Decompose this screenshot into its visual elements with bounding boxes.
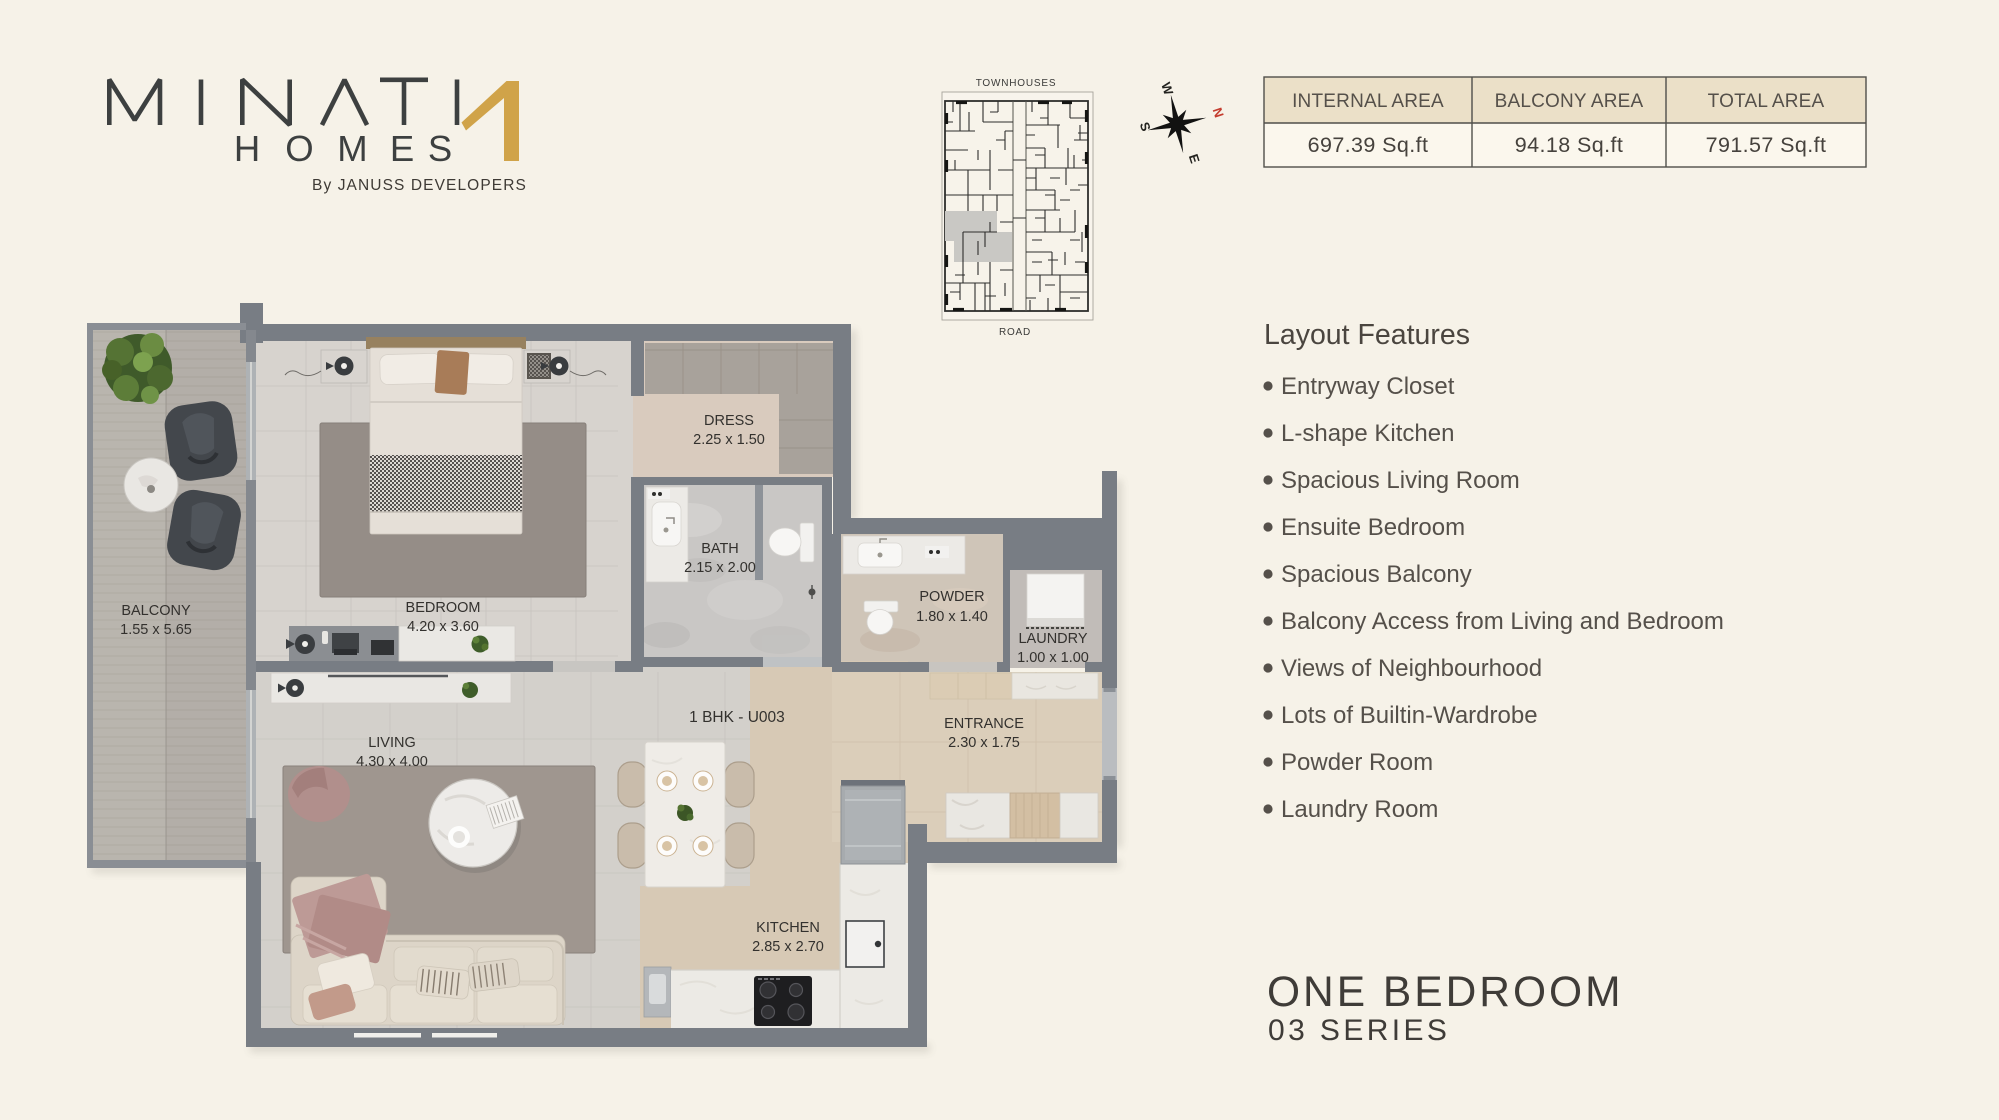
svg-text:LAUNDRY: LAUNDRY (1018, 631, 1087, 647)
svg-text:E: E (390, 128, 414, 169)
svg-text:Powder Room: Powder Room (1281, 749, 1433, 776)
svg-text:1.80 x 1.40: 1.80 x 1.40 (916, 609, 988, 625)
svg-text:2.85 x 2.70: 2.85 x 2.70 (752, 939, 824, 955)
svg-text:4.20 x 3.60: 4.20 x 3.60 (407, 619, 479, 635)
svg-text:LIVING: LIVING (368, 735, 416, 751)
svg-text:BEDROOM: BEDROOM (406, 600, 481, 616)
svg-text:Layout Features: Layout Features (1264, 319, 1470, 351)
svg-text:INTERNAL AREA: INTERNAL AREA (1292, 91, 1444, 112)
svg-text:BATH: BATH (701, 541, 739, 557)
svg-text:L-shape Kitchen: L-shape Kitchen (1281, 420, 1454, 447)
svg-text:ENTRANCE: ENTRANCE (944, 716, 1024, 732)
svg-text:697.39 Sq.ft: 697.39 Sq.ft (1308, 133, 1429, 157)
svg-text:By JANUSS DEVELOPERS: By JANUSS DEVELOPERS (312, 177, 527, 194)
svg-text:Laundry Room: Laundry Room (1281, 796, 1438, 823)
svg-text:2.15 x 2.00: 2.15 x 2.00 (684, 560, 756, 576)
svg-text:4.30 x 4.00: 4.30 x 4.00 (356, 754, 428, 770)
svg-text:S: S (428, 128, 452, 169)
svg-text:791.57 Sq.ft: 791.57 Sq.ft (1706, 133, 1827, 157)
svg-text:BALCONY: BALCONY (121, 603, 191, 619)
svg-text:Entryway Closet: Entryway Closet (1281, 373, 1455, 400)
svg-text:ONE BEDROOM: ONE BEDROOM (1267, 969, 1624, 1016)
svg-text:1 BHK - U003: 1 BHK - U003 (689, 709, 785, 726)
svg-text:Balcony Access from Living and: Balcony Access from Living and Bedroom (1281, 608, 1724, 635)
svg-text:POWDER: POWDER (919, 589, 984, 605)
svg-text:Spacious Living Room: Spacious Living Room (1281, 467, 1520, 494)
svg-text:1.55 x 5.65: 1.55 x 5.65 (120, 622, 192, 638)
svg-text:M: M (337, 128, 367, 169)
svg-text:Lots of Builtin-Wardrobe: Lots of Builtin-Wardrobe (1281, 702, 1538, 729)
svg-text:TOTAL AREA: TOTAL AREA (1708, 91, 1825, 112)
svg-text:O: O (285, 128, 313, 169)
svg-text:03 SERIES: 03 SERIES (1268, 1014, 1450, 1047)
svg-text:2.30 x 1.75: 2.30 x 1.75 (948, 735, 1020, 751)
svg-text:KITCHEN: KITCHEN (756, 920, 820, 936)
svg-text:DRESS: DRESS (704, 413, 754, 429)
svg-text:94.18 Sq.ft: 94.18 Sq.ft (1515, 133, 1623, 157)
svg-text:ROAD: ROAD (999, 327, 1031, 338)
svg-text:Ensuite Bedroom: Ensuite Bedroom (1281, 514, 1465, 541)
svg-text:1.00 x 1.00: 1.00 x 1.00 (1017, 650, 1089, 666)
svg-text:Views of Neighbourhood: Views of Neighbourhood (1281, 655, 1542, 682)
svg-text:H: H (234, 128, 260, 169)
svg-text:Spacious Balcony: Spacious Balcony (1281, 561, 1472, 588)
svg-text:BALCONY AREA: BALCONY AREA (1495, 91, 1644, 112)
svg-text:2.25 x 1.50: 2.25 x 1.50 (693, 432, 765, 448)
svg-text:TOWNHOUSES: TOWNHOUSES (976, 78, 1057, 89)
